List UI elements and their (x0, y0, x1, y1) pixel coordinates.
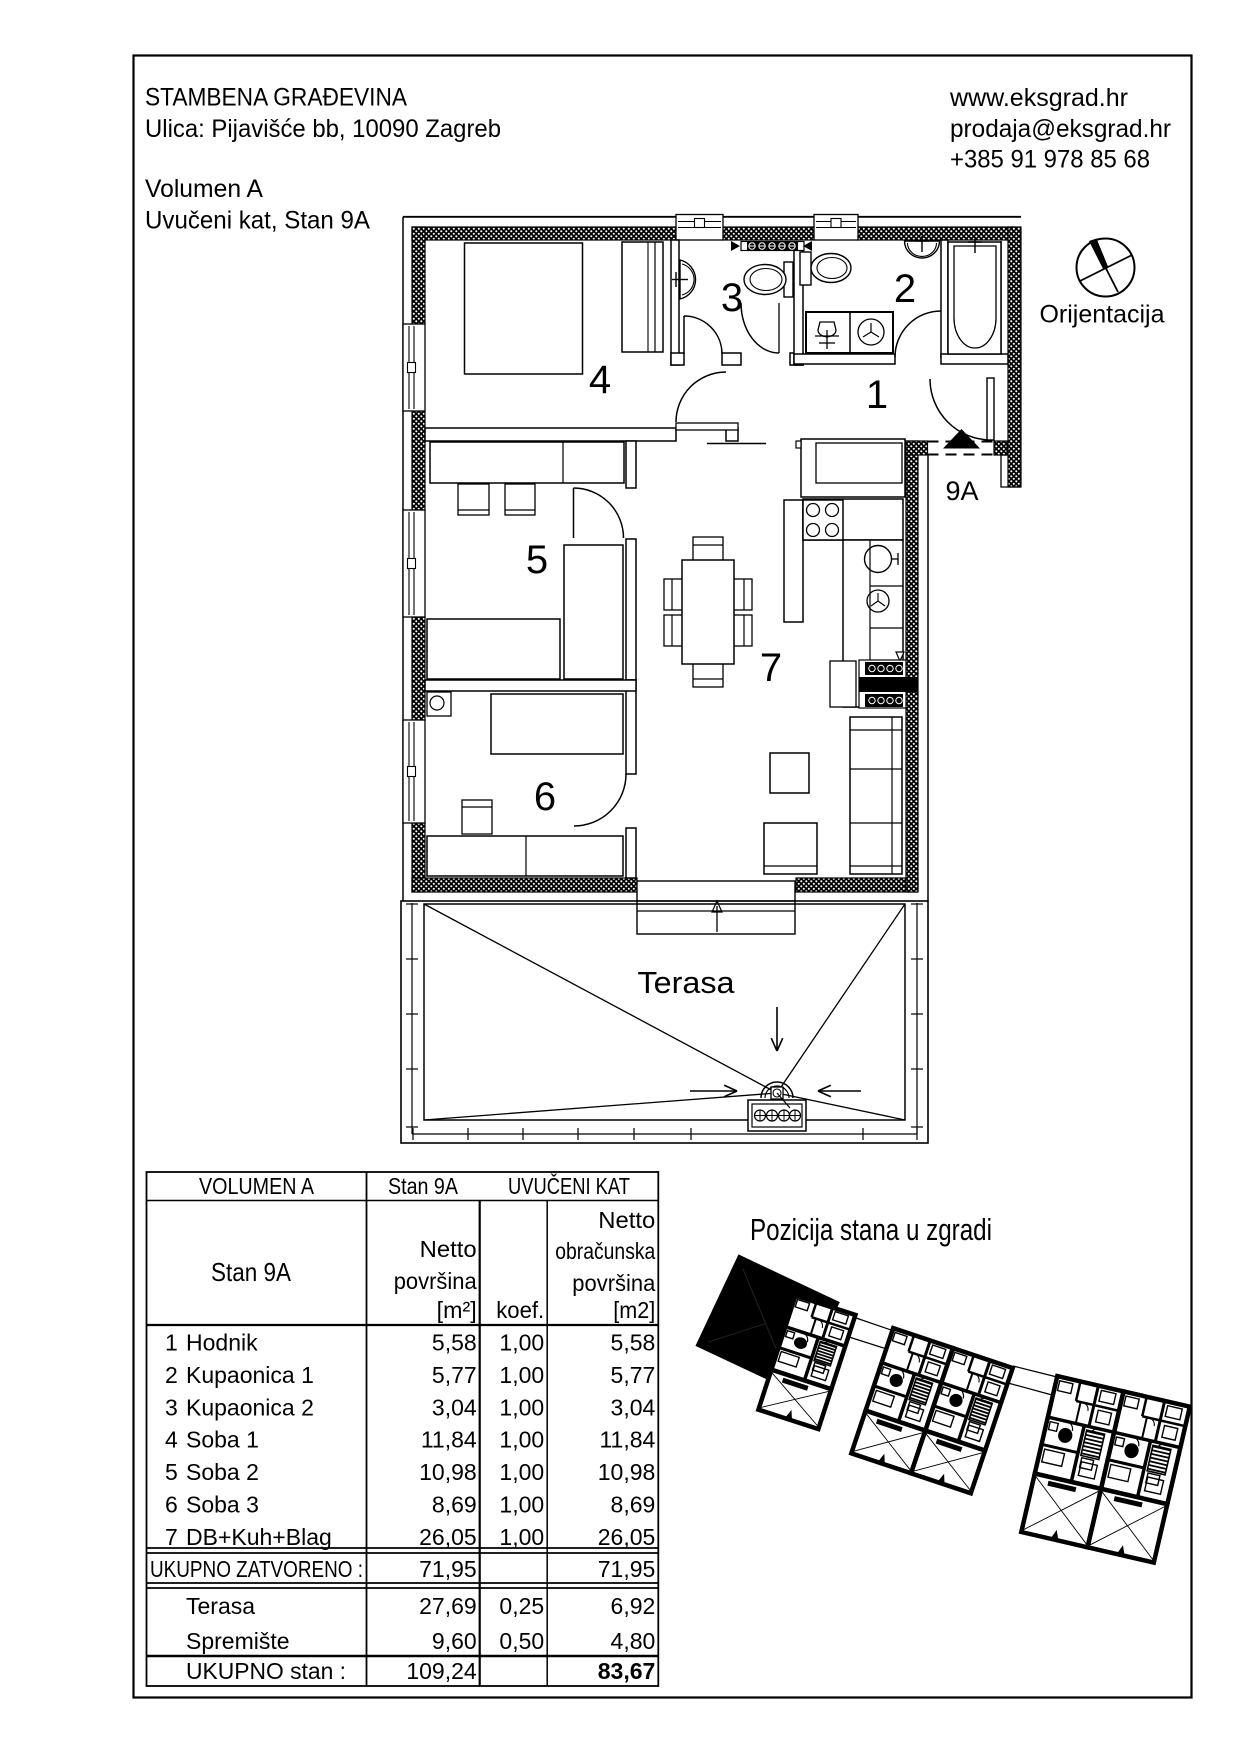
svg-text:2: 2 (165, 1362, 178, 1388)
svg-text:6: 6 (534, 775, 556, 819)
svg-text:6,92: 6,92 (611, 1593, 656, 1619)
svg-text:Uvučeni kat, Stan 9A: Uvučeni kat, Stan 9A (145, 207, 370, 235)
svg-text:3: 3 (165, 1394, 178, 1420)
svg-text:Ulica: Pijavišće bb, 10090 Zag: Ulica: Pijavišće bb, 10090 Zagreb (145, 115, 501, 143)
svg-text:3,04: 3,04 (432, 1394, 477, 1420)
svg-text:UVUČENI KAT: UVUČENI KAT (508, 1172, 630, 1199)
svg-text:obračunska: obračunska (555, 1238, 655, 1264)
svg-text:Pozicija stana u zgradi: Pozicija stana u zgradi (750, 1212, 992, 1247)
svg-text:1: 1 (866, 373, 888, 417)
svg-text:3: 3 (721, 276, 743, 320)
svg-text:+385 91 978 85 68: +385 91 978 85 68 (950, 146, 1150, 174)
svg-text:5,77: 5,77 (611, 1362, 656, 1388)
svg-text:4: 4 (165, 1427, 178, 1453)
svg-text:10,98: 10,98 (598, 1459, 656, 1485)
svg-text:26,05: 26,05 (598, 1524, 656, 1550)
svg-text:11,84: 11,84 (421, 1427, 477, 1453)
svg-text:Netto: Netto (420, 1236, 477, 1262)
svg-text:STAMBENA GRAĐEVINA: STAMBENA GRAĐEVINA (145, 84, 407, 112)
svg-text:1,00: 1,00 (499, 1330, 544, 1356)
svg-text:prodaja@eksgrad.hr: prodaja@eksgrad.hr (950, 115, 1171, 143)
svg-text:DB+Kuh+Blag: DB+Kuh+Blag (186, 1524, 332, 1550)
svg-text:www.eksgrad.hr: www.eksgrad.hr (949, 84, 1128, 112)
svg-text:71,95: 71,95 (598, 1556, 656, 1582)
svg-text:Stan 9A: Stan 9A (388, 1173, 459, 1199)
svg-text:Kupaonica 2: Kupaonica 2 (186, 1394, 314, 1420)
svg-text:9,60: 9,60 (432, 1628, 477, 1654)
svg-text:3,04: 3,04 (611, 1394, 656, 1420)
svg-text:2: 2 (894, 267, 916, 311)
svg-text:Netto: Netto (598, 1207, 655, 1233)
svg-text:26,05: 26,05 (419, 1524, 477, 1550)
svg-text:5,77: 5,77 (432, 1362, 477, 1388)
svg-text:4: 4 (589, 358, 611, 402)
svg-text:Soba 2: Soba 2 (186, 1459, 259, 1485)
svg-text:površina: površina (394, 1268, 477, 1294)
svg-text:površina: površina (572, 1270, 655, 1296)
svg-text:Soba 1: Soba 1 (186, 1427, 259, 1453)
svg-text:0,50: 0,50 (499, 1628, 544, 1654)
svg-text:Terasa: Terasa (638, 965, 736, 1000)
svg-text:7: 7 (165, 1524, 178, 1550)
svg-text:1,00: 1,00 (499, 1427, 544, 1453)
svg-text:1: 1 (165, 1330, 178, 1356)
svg-text:109,24: 109,24 (406, 1658, 477, 1684)
svg-text:Hodnik: Hodnik (186, 1330, 258, 1356)
svg-text:1,00: 1,00 (499, 1524, 544, 1550)
svg-text:5,58: 5,58 (432, 1330, 477, 1356)
svg-text:6: 6 (165, 1492, 178, 1518)
svg-text:UKUPNO ZATVORENO :: UKUPNO ZATVORENO : (150, 1556, 363, 1582)
svg-text:8,69: 8,69 (432, 1492, 477, 1518)
svg-text:Kupaonica 1: Kupaonica 1 (186, 1362, 314, 1388)
svg-text:1,00: 1,00 (499, 1362, 544, 1388)
svg-text:1,00: 1,00 (499, 1459, 544, 1485)
svg-text:5,58: 5,58 (611, 1330, 656, 1356)
svg-text:Stan 9A: Stan 9A (211, 1257, 292, 1287)
svg-text:83,67: 83,67 (598, 1658, 656, 1684)
svg-text:Spremište: Spremište (186, 1628, 290, 1654)
svg-text:Volumen A: Volumen A (145, 175, 263, 203)
svg-text:[m2]: [m2] (613, 1297, 655, 1323)
svg-text:[m²]: [m²] (437, 1297, 477, 1323)
svg-text:27,69: 27,69 (419, 1593, 477, 1619)
svg-text:Orijentacija: Orijentacija (1040, 301, 1165, 329)
svg-text:4,80: 4,80 (611, 1628, 656, 1654)
svg-text:1,00: 1,00 (499, 1394, 544, 1420)
svg-text:8,69: 8,69 (611, 1492, 656, 1518)
svg-text:1,00: 1,00 (499, 1492, 544, 1518)
svg-text:11,84: 11,84 (599, 1427, 655, 1453)
svg-text:koef.: koef. (496, 1297, 544, 1323)
svg-text:0,25: 0,25 (499, 1593, 544, 1619)
svg-text:VOLUMEN A: VOLUMEN A (199, 1173, 315, 1199)
svg-text:Soba 3: Soba 3 (186, 1492, 259, 1518)
svg-text:9A: 9A (945, 476, 978, 506)
svg-text:71,95: 71,95 (419, 1556, 477, 1582)
svg-text:7: 7 (760, 646, 782, 690)
svg-text:5: 5 (526, 538, 548, 582)
svg-text:10,98: 10,98 (419, 1459, 477, 1485)
svg-text:UKUPNO stan :: UKUPNO stan : (186, 1658, 346, 1684)
svg-text:Terasa: Terasa (186, 1593, 255, 1619)
svg-text:5: 5 (165, 1459, 178, 1485)
